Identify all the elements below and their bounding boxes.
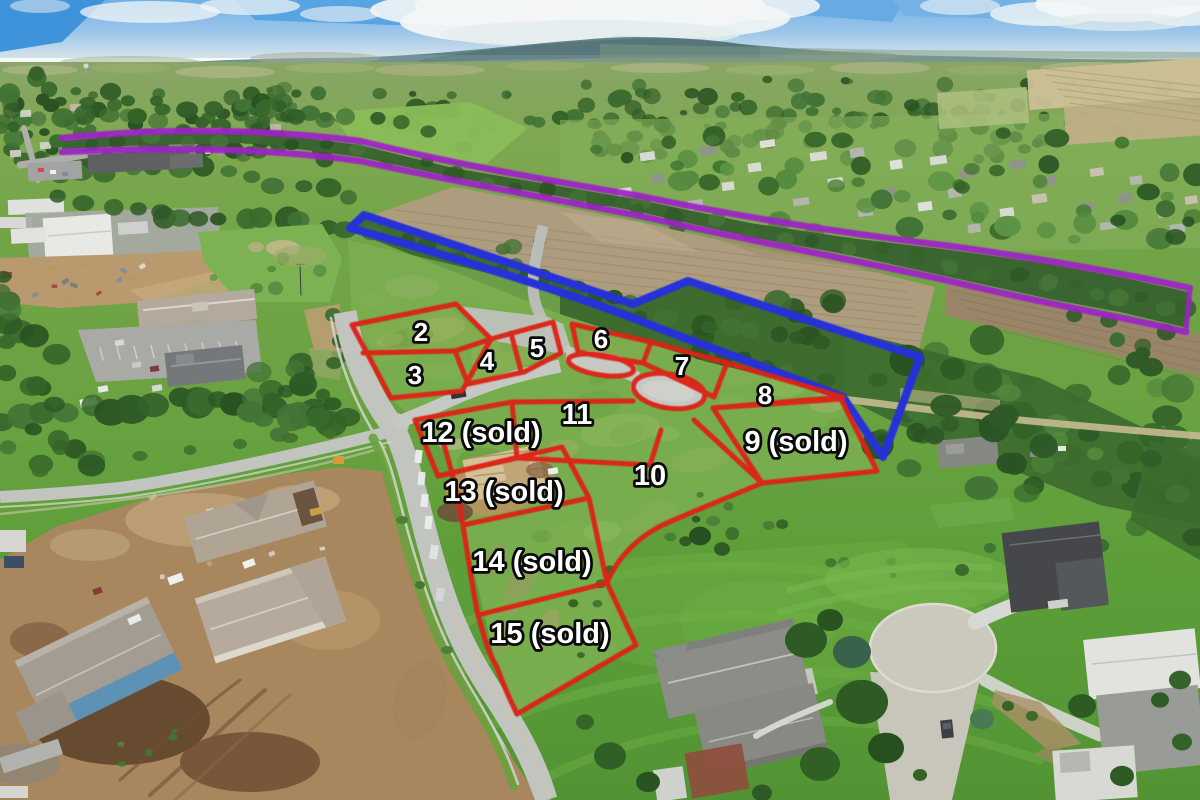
- svg-text:10: 10: [634, 460, 666, 492]
- svg-text:7: 7: [675, 351, 689, 381]
- svg-text:15 (sold): 15 (sold): [490, 618, 609, 650]
- svg-text:9 (sold): 9 (sold): [744, 426, 847, 458]
- svg-text:8: 8: [758, 380, 772, 410]
- svg-text:13 (sold): 13 (sold): [444, 476, 563, 508]
- svg-text:4: 4: [480, 346, 495, 376]
- svg-text:2: 2: [414, 317, 428, 347]
- svg-text:3: 3: [408, 360, 422, 390]
- svg-text:14 (sold): 14 (sold): [472, 546, 591, 578]
- svg-text:6: 6: [594, 324, 608, 354]
- svg-text:12 (sold): 12 (sold): [421, 417, 540, 449]
- svg-text:5: 5: [530, 333, 544, 363]
- svg-text:11: 11: [562, 399, 593, 431]
